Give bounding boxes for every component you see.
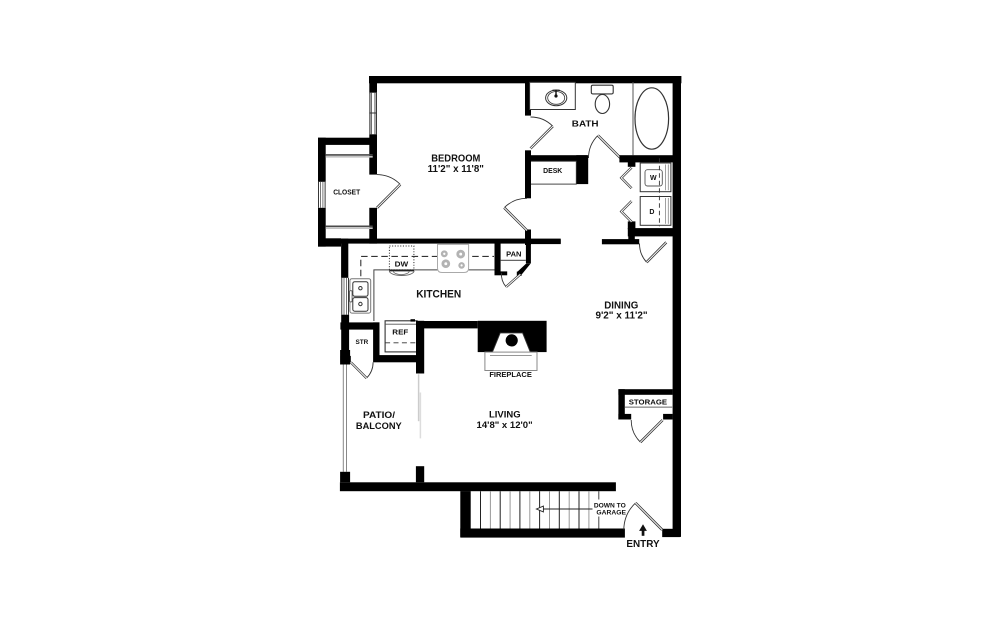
svg-text:11'2" x 11'8": 11'2" x 11'8" (428, 164, 485, 175)
svg-text:W: W (650, 175, 657, 182)
svg-text:D: D (649, 209, 654, 216)
svg-text:FIREPLACE: FIREPLACE (489, 370, 532, 379)
svg-text:PAN: PAN (506, 252, 521, 259)
svg-text:STR: STR (356, 339, 369, 346)
svg-text:GARAGE: GARAGE (596, 510, 626, 517)
svg-text:BEDROOM: BEDROOM (431, 154, 480, 165)
svg-text:REF: REF (392, 327, 408, 336)
svg-text:LIVING: LIVING (489, 410, 521, 420)
svg-text:STORAGE: STORAGE (629, 397, 667, 406)
svg-text:ENTRY: ENTRY (626, 539, 660, 550)
svg-text:DW: DW (395, 262, 409, 269)
svg-text:KITCHEN: KITCHEN (416, 288, 461, 300)
svg-text:BATH: BATH (572, 118, 599, 128)
svg-text:9'2" x 11'2": 9'2" x 11'2" (595, 311, 647, 322)
svg-text:14'8" x 12'0": 14'8" x 12'0" (477, 420, 533, 430)
svg-text:CLOSET: CLOSET (333, 190, 361, 197)
svg-text:PATIO/: PATIO/ (363, 410, 395, 421)
svg-text:BALCONY: BALCONY (356, 421, 402, 432)
svg-text:DESK: DESK (543, 168, 562, 175)
